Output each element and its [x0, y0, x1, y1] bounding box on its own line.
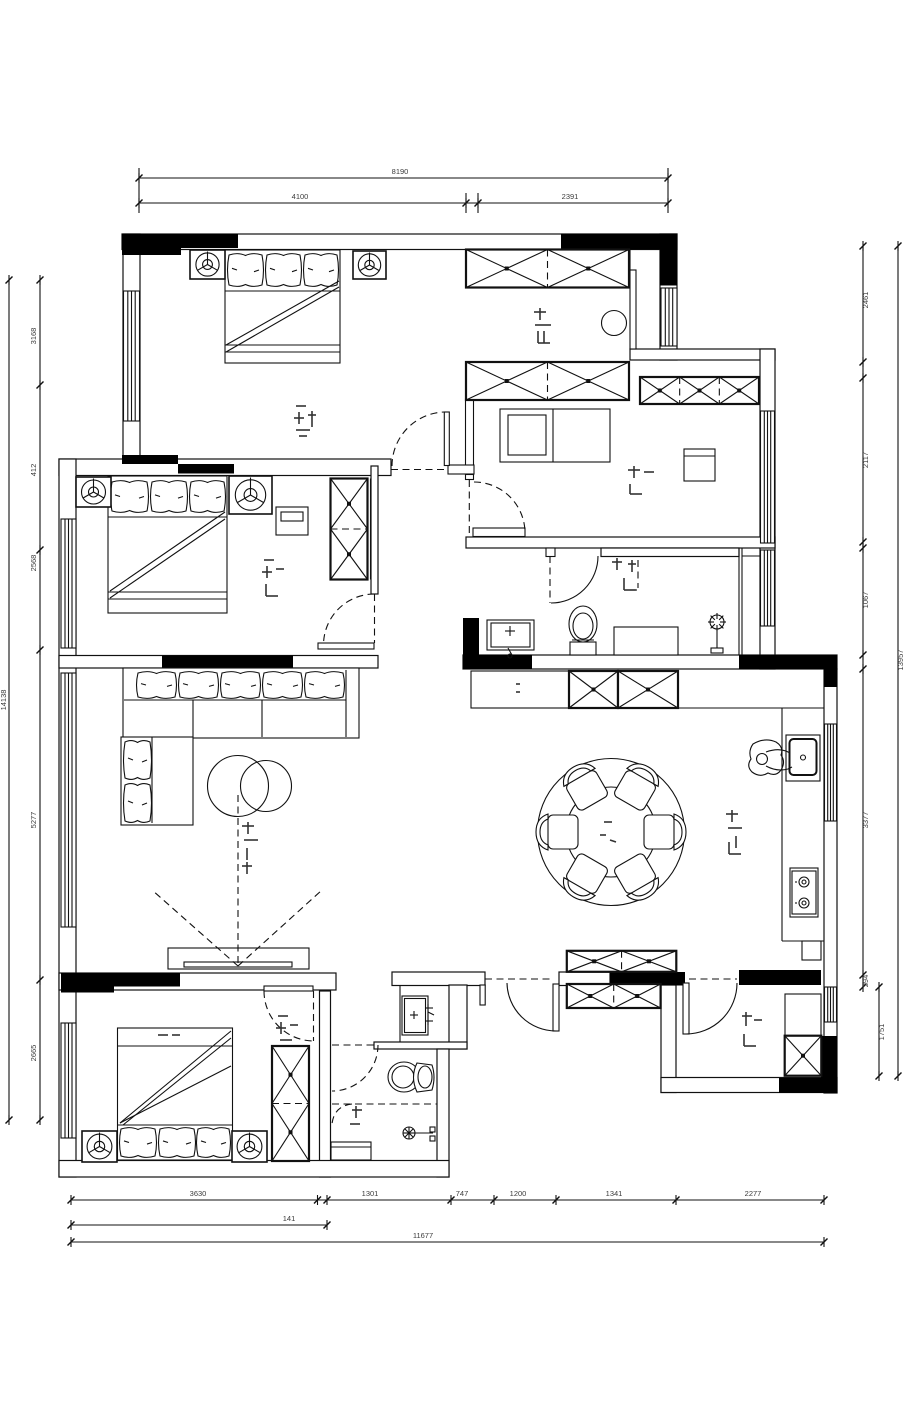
- svg-text:2568: 2568: [29, 555, 38, 572]
- svg-text:1200: 1200: [510, 1189, 527, 1198]
- svg-text:2665: 2665: [29, 1045, 38, 1062]
- svg-text:3377: 3377: [861, 812, 870, 829]
- svg-text:3630: 3630: [190, 1189, 207, 1198]
- svg-text:4100: 4100: [292, 192, 309, 201]
- svg-text:5277: 5277: [29, 812, 38, 829]
- svg-text:2277: 2277: [745, 1189, 762, 1198]
- svg-text:412: 412: [29, 464, 38, 477]
- svg-text:11677: 11677: [413, 1231, 433, 1240]
- svg-text:141: 141: [283, 1214, 296, 1223]
- svg-text:3168: 3168: [29, 328, 38, 345]
- svg-text:1341: 1341: [606, 1189, 623, 1198]
- svg-text:8190: 8190: [392, 167, 409, 176]
- svg-text:13957: 13957: [896, 650, 905, 671]
- svg-text:294: 294: [861, 975, 870, 988]
- svg-text:2461: 2461: [861, 292, 870, 309]
- svg-text:1301: 1301: [362, 1189, 379, 1198]
- svg-text:1751: 1751: [877, 1024, 886, 1041]
- svg-text:2391: 2391: [562, 192, 579, 201]
- svg-text:2117: 2117: [861, 452, 870, 468]
- svg-text:1067: 1067: [861, 592, 870, 609]
- svg-text:747: 747: [456, 1189, 469, 1198]
- svg-text:14138: 14138: [0, 690, 8, 711]
